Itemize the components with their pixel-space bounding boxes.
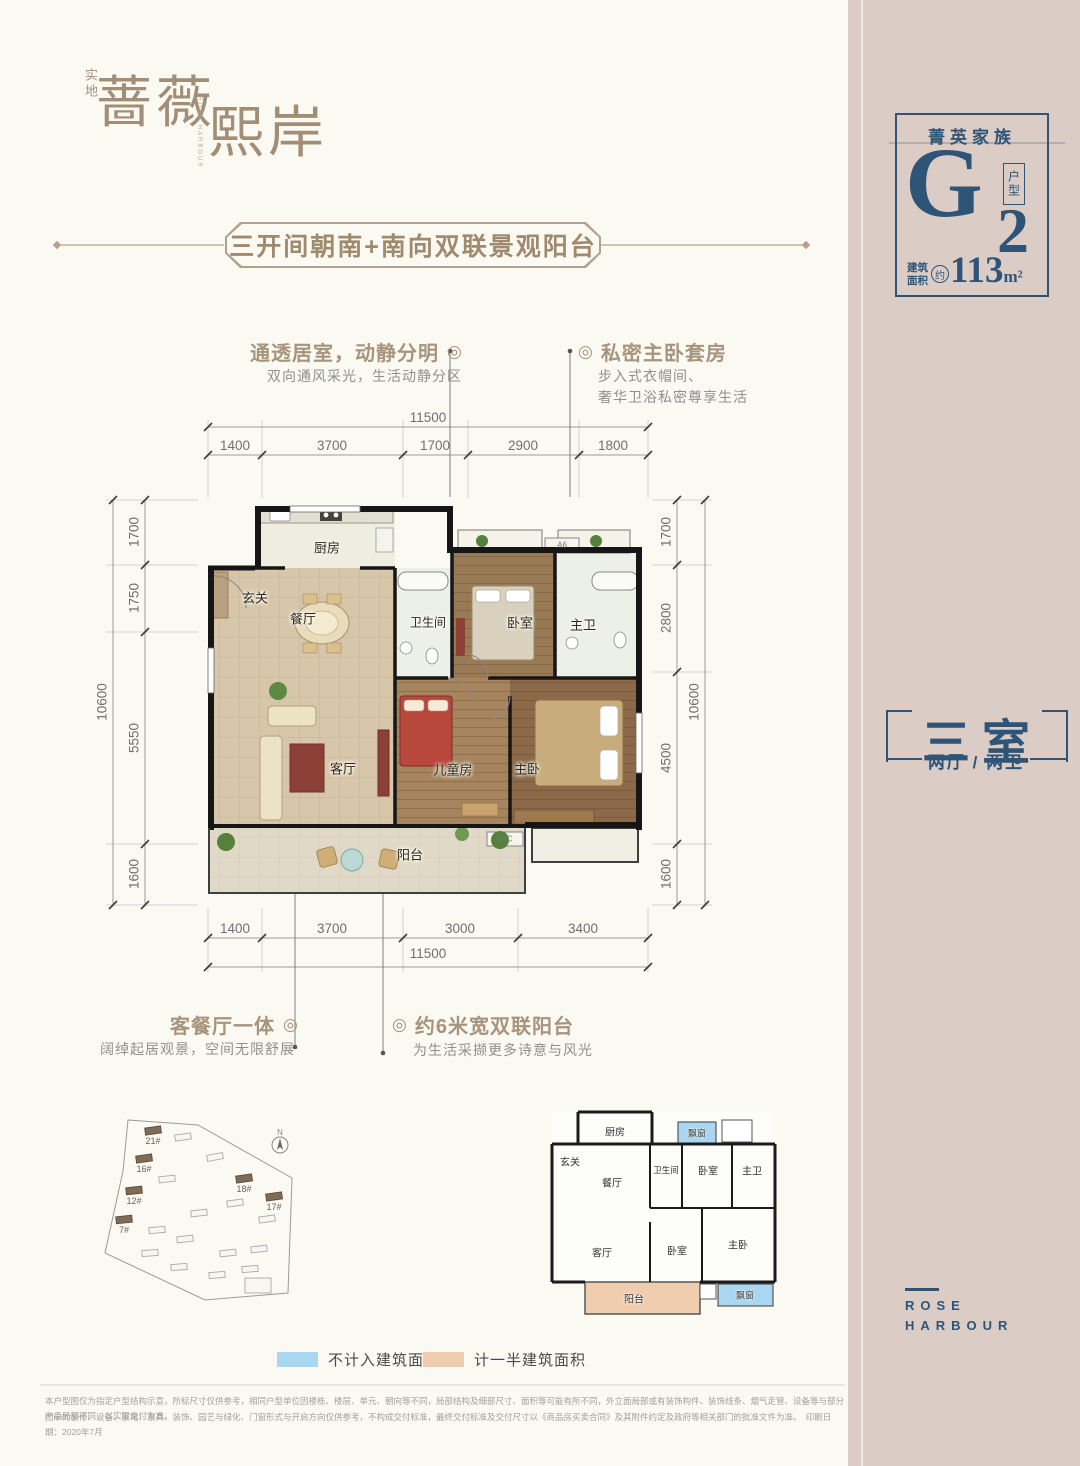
mini-label-foyer: 玄关 [560, 1154, 580, 1169]
mini-label-master: 主卧 [728, 1237, 748, 1252]
callout-marker-icon: ◎ [392, 1015, 407, 1035]
building-label: 12# [126, 1196, 141, 1206]
legend-swatch-tan [423, 1352, 464, 1367]
legend-label: 计一半建筑面积 [474, 1349, 586, 1370]
compass-north-label: N [277, 1128, 283, 1137]
headline-banner-inner: 三开间朝南+南向双联景观阳台 [227, 224, 599, 266]
dim-left-seg: 1700 [127, 517, 142, 547]
mini-label-bath: 卫生间 [653, 1164, 679, 1176]
mini-label-kitchen: 厨房 [605, 1124, 625, 1139]
ac-platform-label: A6 [557, 541, 567, 550]
dim-top-seg: 1400 [220, 438, 250, 453]
area-label-line1: 建筑 [907, 262, 928, 275]
callout-desc: 奢华卫浴私密尊享生活 [598, 387, 748, 407]
dim-top-seg: 1700 [420, 438, 450, 453]
dim-top-total: 11500 [410, 410, 447, 425]
callout-desc: 双向通风采光，生活动静分区 [267, 366, 462, 386]
building-label: 18# [236, 1184, 251, 1194]
summary-halls-baths: 两厅 / 两卫 [880, 748, 1072, 773]
area-unit: m² [1003, 267, 1022, 286]
mini-label-bay-window: 飘窗 [688, 1127, 706, 1140]
brand-english-line2: HARBOUR [905, 1318, 1013, 1333]
dim-bottom-total: 11500 [410, 946, 447, 961]
room-label-kitchen: 厨房 [314, 538, 340, 557]
mini-label-dining: 餐厅 [602, 1175, 622, 1190]
site-plan-drawing [95, 1113, 325, 1318]
headline-banner: 三开间朝南+南向双联景观阳台 [225, 222, 601, 268]
headline-title: 三开间朝南+南向双联景观阳台 [229, 227, 597, 263]
room-label-foyer: 玄关 [242, 588, 268, 607]
building-label: 21# [145, 1136, 160, 1146]
dim-right-seg: 4500 [659, 743, 674, 773]
room-label-master-bath: 主卫 [570, 615, 596, 634]
dim-left-seg: 1600 [127, 859, 142, 889]
dim-right-seg: 1700 [659, 517, 674, 547]
type-letter: G [905, 133, 983, 233]
callout-title: 客餐厅一体 [170, 1010, 275, 1039]
area-value: 113m² [950, 252, 1023, 289]
room-label-master: 主卧 [514, 759, 540, 778]
room-label-kids: 儿童房 [433, 760, 472, 779]
disclaimer-line: 图中的装修、设备、家电、家具、装饰、园艺与绿化、门窗形式与开启方向仅供参考，不构… [45, 1410, 845, 1441]
dim-left-seg: 1750 [127, 583, 142, 613]
callout-title: 私密主卧套房 [601, 337, 727, 366]
callout-top-left: 通透居室，动静分明 ◎ [250, 337, 462, 366]
building-label: 16# [136, 1164, 151, 1174]
brand-name-second: 熙岸 [208, 88, 328, 169]
dim-right-total: 10600 [687, 683, 702, 721]
callout-bottom-right: ◎ 约6米宽双联阳台 [392, 1010, 574, 1039]
compass-icon [272, 1137, 288, 1153]
area-label: 建筑 面积 [907, 262, 928, 287]
room-label-bath: 卫生间 [410, 614, 446, 631]
dim-right-seg: 2800 [659, 603, 674, 633]
callout-marker-icon: ◎ [447, 342, 462, 362]
dim-top-seg: 1800 [598, 438, 628, 453]
room-label-balcony: 阳台 [397, 845, 423, 864]
dim-bottom-seg: 3400 [568, 921, 598, 936]
legend-item-half-counted: 计一半建筑面积 [423, 1349, 586, 1370]
legend-swatch-blue [277, 1352, 318, 1367]
dim-bottom-seg: 3000 [445, 921, 475, 936]
brand-english-vertical: ROSE HARBOUR [196, 96, 202, 169]
ac-platform-label: 2#C [498, 835, 513, 844]
dim-top-seg: 2900 [508, 438, 538, 453]
callout-desc: 阔绰起居观景，空间无限舒展 [100, 1039, 295, 1059]
area-label-line2: 面积 [907, 275, 928, 288]
callout-title: 通透居室，动静分明 [250, 337, 439, 366]
mini-label-master-bath: 主卫 [742, 1163, 762, 1178]
approx-badge: 约 [931, 265, 949, 283]
room-label-dining: 餐厅 [290, 609, 316, 628]
callout-marker-icon: ◎ [283, 1015, 298, 1035]
room-label-bedroom: 卧室 [507, 613, 533, 632]
mini-label-bedroom2: 卧室 [667, 1243, 687, 1258]
callout-top-right: ◎ 私密主卧套房 [578, 337, 727, 366]
mini-label-living: 客厅 [592, 1245, 612, 1260]
mini-label-bay-window: 飘窗 [736, 1289, 754, 1302]
legend-item-not-counted: 不计入建筑面积 [277, 1349, 440, 1370]
dim-top-seg: 3700 [317, 438, 347, 453]
floor-plan-drawing [200, 498, 650, 906]
unit-type-card: 菁英家族 G 户型 2 建筑 面积 约 113m² [895, 113, 1049, 297]
callout-bottom-left: 客餐厅一体 ◎ [170, 1010, 298, 1039]
mini-plan-fills [552, 1112, 775, 1314]
site-buildings-highlighted [116, 1126, 283, 1224]
callout-title: 约6米宽双联阳台 [415, 1010, 574, 1039]
dim-bottom-seg: 3700 [317, 921, 347, 936]
dim-left-seg: 5550 [127, 723, 142, 753]
area-number: 113 [950, 250, 1003, 291]
dim-right-seg: 1600 [659, 859, 674, 889]
mini-label-bedroom: 卧室 [698, 1163, 718, 1178]
dim-bottom-seg: 1400 [220, 921, 250, 936]
callout-desc: 为生活采撷更多诗意与风光 [413, 1040, 593, 1060]
callout-desc: 步入式衣帽间、 [598, 366, 703, 386]
building-label: 17# [266, 1202, 281, 1212]
room-label-living: 客厅 [330, 759, 356, 778]
brand-english-line1: ROSE [905, 1298, 966, 1313]
brochure-page: 实地 蔷薇 ROSE HARBOUR 熙岸 三开间朝南+南向双联景观阳台 菁英家… [0, 0, 1080, 1466]
dim-left-total: 10600 [95, 683, 110, 721]
callout-marker-icon: ◎ [578, 342, 593, 362]
mini-label-balcony: 阳台 [624, 1291, 644, 1306]
building-label: 7# [119, 1225, 129, 1235]
brand-rule [905, 1288, 939, 1291]
